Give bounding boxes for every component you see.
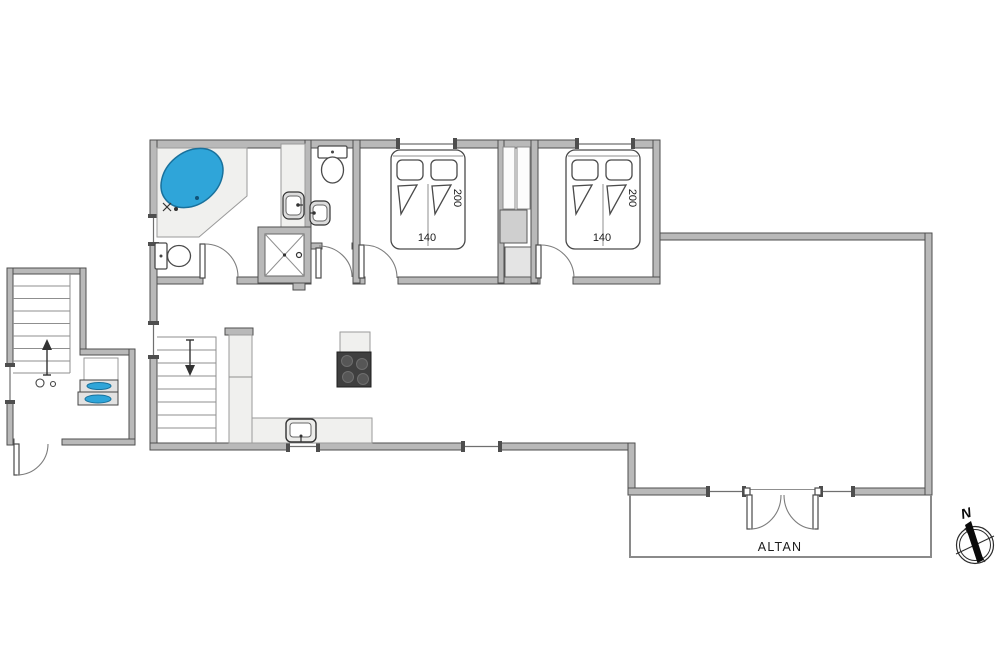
stairs-main: [157, 337, 216, 443]
kitchen-sink: [286, 419, 316, 442]
compass-rose: N: [956, 504, 994, 564]
annex-cabinet: [84, 358, 118, 380]
pillow: [606, 160, 632, 180]
double-bed-1: 140 200: [391, 150, 465, 249]
stair-treads: [157, 350, 216, 428]
tub-drain: [195, 196, 199, 200]
kitchen-island: [340, 332, 370, 353]
double-bed-2: 140 200: [566, 150, 640, 249]
door-bedroom2: [536, 245, 574, 278]
pillow: [397, 160, 423, 180]
window-living-left: [706, 486, 746, 497]
toilet-bathroom: [155, 243, 191, 269]
kitchen-counter-vertical: [229, 335, 252, 443]
bed1-length-label: 200: [451, 189, 463, 207]
door-wc: [316, 246, 352, 278]
door-entrance: [14, 444, 48, 475]
bedroom-1: 140 200: [391, 150, 465, 249]
pillow: [572, 160, 598, 180]
window-dining-south: [461, 441, 502, 452]
window-annex: [5, 363, 15, 404]
floorplan-drawing: 140 200 140 200: [0, 0, 1000, 666]
cooktop: [337, 352, 371, 387]
annex-symbol: [36, 379, 44, 387]
door-bathroom: [200, 244, 238, 278]
window-living-right: [819, 486, 855, 497]
annex-walls: [7, 268, 135, 445]
kitchen: [229, 332, 372, 443]
bathroom-spa: [149, 136, 311, 290]
door-bedroom1: [359, 245, 397, 278]
window-bedroom2: [575, 138, 635, 149]
bed2-length-label: 200: [626, 189, 638, 207]
balcony: ALTAN: [630, 495, 931, 557]
balcony-label: ALTAN: [758, 540, 802, 554]
window-kitchen: [148, 321, 159, 359]
stair-treads: [13, 286, 70, 361]
stairs-up-arrow: [42, 339, 52, 375]
window-bedroom1: [396, 138, 457, 149]
annex-symbol: [51, 382, 56, 387]
stairs-down-arrow: [185, 340, 195, 376]
bed2-width-label: 140: [593, 232, 611, 244]
toilet-wc: [318, 146, 347, 183]
entrance-annex: [13, 274, 118, 405]
wc-room: [310, 146, 347, 225]
washbasin-wc: [310, 201, 330, 225]
double-washbasin: [78, 380, 118, 405]
closet-shaft: [500, 147, 531, 277]
bed1-width-label: 140: [418, 232, 436, 244]
washbasin-bathroom: [283, 192, 304, 219]
pillow: [431, 160, 457, 180]
compass-north-label: N: [959, 504, 974, 522]
floorplan-canvas: 140 200 140 200: [0, 0, 1000, 666]
bedroom-2: 140 200: [566, 150, 640, 249]
door-balcony-double: [744, 488, 821, 529]
shower-cabin: [258, 227, 311, 290]
